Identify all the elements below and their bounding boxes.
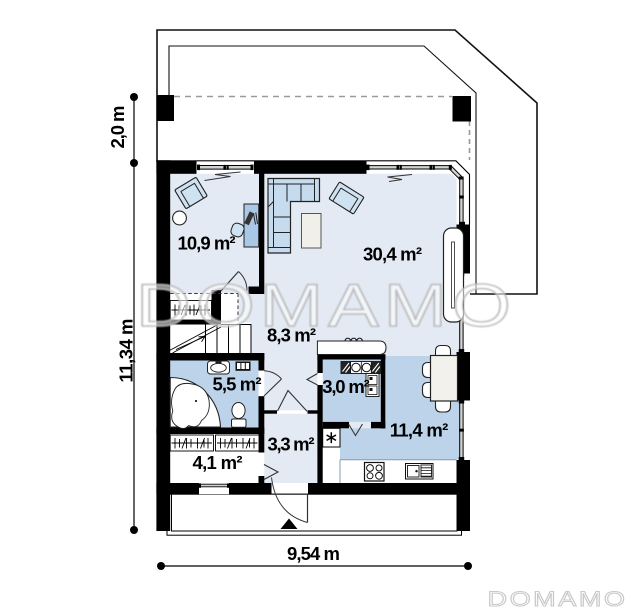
svg-text:11,34 m: 11,34 m (116, 319, 137, 383)
svg-text:30,4 m²: 30,4 m² (363, 244, 422, 265)
svg-text:8,3 m²: 8,3 m² (267, 325, 316, 346)
svg-text:3,0 m²: 3,0 m² (322, 376, 370, 397)
svg-text:9,54 m: 9,54 m (287, 543, 340, 564)
svg-text:4,1 m²: 4,1 m² (193, 452, 243, 473)
svg-text:DOMAMO: DOMAMO (136, 272, 516, 339)
svg-text:2,0 m: 2,0 m (107, 106, 128, 149)
svg-text:10,9 m²: 10,9 m² (178, 233, 236, 254)
svg-text:DOMAMO: DOMAMO (488, 587, 628, 611)
svg-text:11,4 m²: 11,4 m² (390, 420, 449, 441)
svg-text:5,5 m²: 5,5 m² (213, 374, 262, 395)
svg-text:3,3 m²: 3,3 m² (268, 434, 315, 455)
